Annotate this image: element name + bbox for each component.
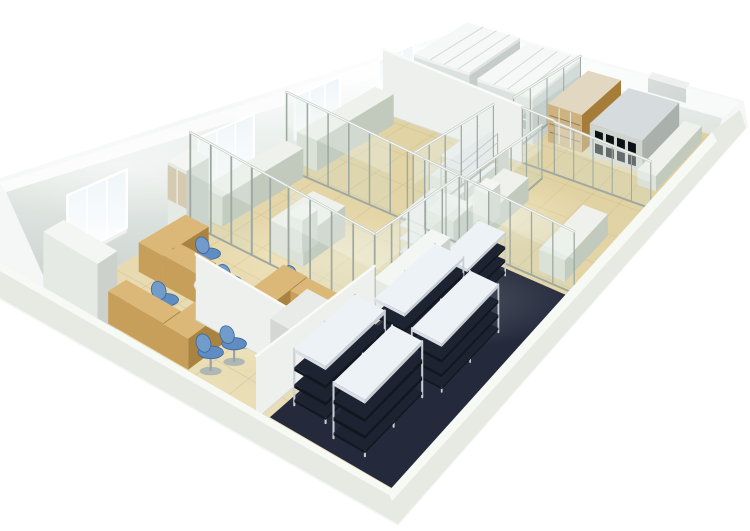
- lab-floorplan-3d-render: [0, 0, 750, 531]
- floorplan-scene: [0, 0, 750, 531]
